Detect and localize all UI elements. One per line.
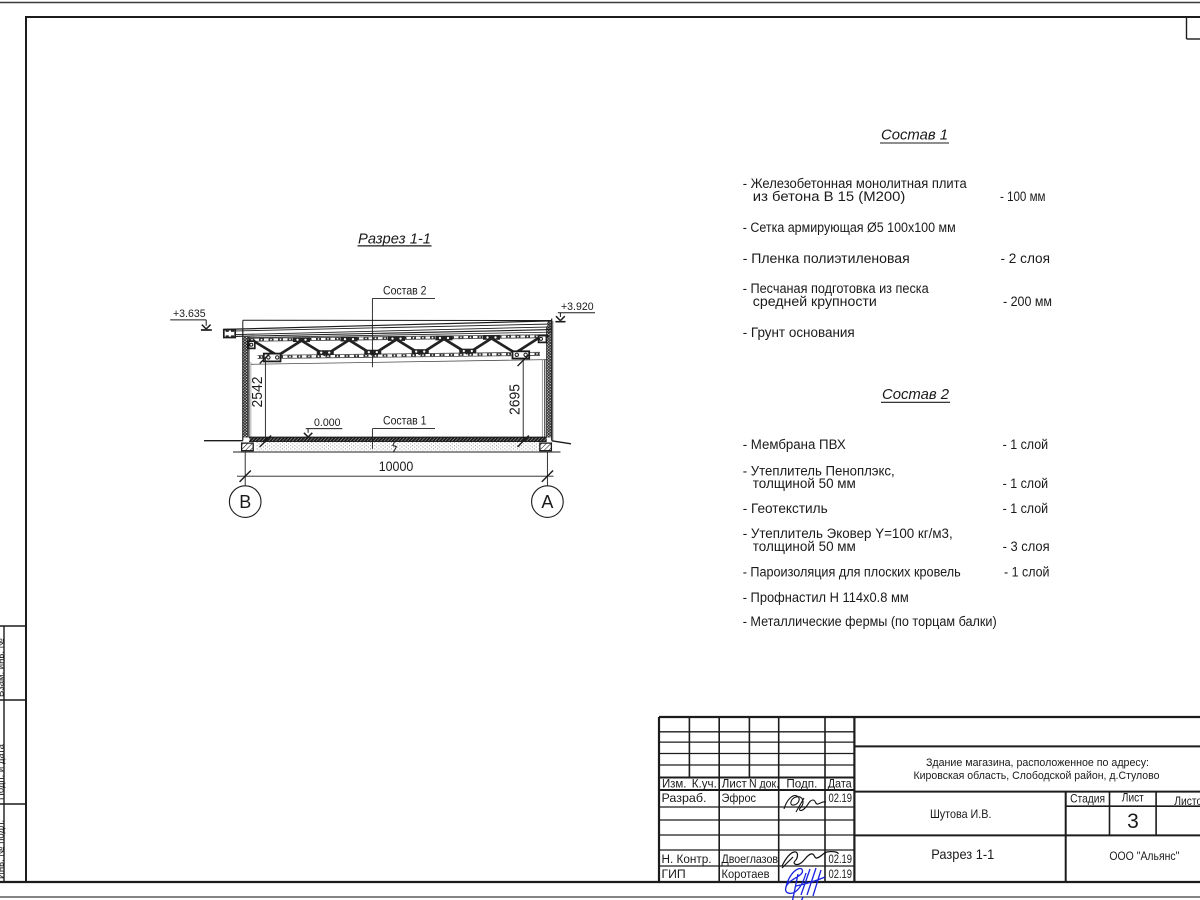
- svg-text:Двоеглазов: Двоеглазов: [722, 852, 779, 866]
- svg-text:- 1 слой: - 1 слой: [1003, 437, 1049, 453]
- svg-text:Лист: Лист: [1122, 791, 1145, 805]
- svg-text:Состав 2: Состав 2: [383, 283, 427, 297]
- svg-text:Разраб.: Разраб.: [662, 791, 707, 805]
- svg-text:Инв. № подл.: Инв. № подл.: [0, 820, 7, 879]
- svg-text:+3.635: +3.635: [173, 308, 206, 320]
- svg-text:- 1 слой: - 1 слой: [1003, 501, 1049, 517]
- svg-text:- Геотекстиль: - Геотекстиль: [743, 501, 828, 517]
- svg-text:Н. Контр.: Н. Контр.: [662, 852, 712, 866]
- svg-text:А: А: [541, 492, 553, 512]
- svg-text:- 200 мм: - 200 мм: [1003, 294, 1052, 310]
- svg-text:Эфрос: Эфрос: [722, 791, 757, 805]
- svg-text:3: 3: [1127, 810, 1139, 833]
- svg-text:10000: 10000: [379, 458, 414, 474]
- svg-text:- 2 слоя: - 2 слоя: [1001, 251, 1051, 267]
- svg-text:- Профнастил Н 114х0.8 мм: - Профнастил Н 114х0.8 мм: [743, 590, 909, 606]
- svg-text:2695: 2695: [508, 384, 524, 415]
- svg-text:- 1 слой: - 1 слой: [1004, 564, 1050, 580]
- svg-text:02.19: 02.19: [829, 852, 853, 866]
- svg-text:Состав 1: Состав 1: [881, 128, 948, 144]
- svg-text:Подп.: Подп.: [786, 777, 817, 791]
- svg-text:- Сетка армирующая Ø5 100х100: - Сетка армирующая Ø5 100х100 мм: [743, 220, 956, 236]
- svg-text:Изм.: Изм.: [662, 777, 687, 791]
- svg-text:Состав 2: Состав 2: [882, 387, 950, 403]
- svg-text:02.19: 02.19: [829, 791, 853, 805]
- svg-text:Взам. инв. №: Взам. инв. №: [0, 638, 7, 697]
- svg-text:- Грунт основания: - Грунт основания: [743, 325, 855, 341]
- svg-text:- Пленка полиэтиленовая: - Пленка полиэтиленовая: [743, 251, 910, 267]
- svg-text:- 3 слоя: - 3 слоя: [1003, 539, 1050, 555]
- svg-text:Стадия: Стадия: [1070, 792, 1105, 806]
- svg-text:толщиной 50 мм: толщиной 50 мм: [753, 539, 856, 555]
- svg-text:из бетона В 15 (М200): из бетона В 15 (М200): [753, 189, 906, 205]
- svg-text:Кировская область, Слободской: Кировская область, Слободской район, д.С…: [914, 770, 1160, 782]
- svg-text:Здание магазина, расположенное: Здание магазина, расположенное по адресу…: [926, 757, 1149, 769]
- svg-text:- 100 мм: - 100 мм: [1000, 189, 1046, 205]
- svg-text:- 1 слой: - 1 слой: [1003, 476, 1049, 492]
- svg-text:- Металлические фермы (по торц: - Металлические фермы (по торцам балки): [743, 614, 997, 630]
- svg-text:Дата: Дата: [828, 777, 852, 791]
- svg-text:Шутова И.В.: Шутова И.В.: [930, 807, 992, 821]
- svg-text:- Пароизоляция для плоских кро: - Пароизоляция для плоских кровель: [743, 564, 961, 580]
- svg-text:+3.920: +3.920: [561, 301, 594, 313]
- svg-text:Разрез 1-1: Разрез 1-1: [931, 846, 994, 862]
- svg-text:Состав 1: Состав 1: [383, 414, 427, 428]
- svg-text:Подп. и дата: Подп. и дата: [0, 743, 7, 800]
- svg-text:- Мембрана ПВХ: - Мембрана ПВХ: [743, 437, 847, 453]
- svg-text:2542: 2542: [250, 377, 266, 408]
- svg-text:Листов: Листов: [1174, 794, 1200, 808]
- svg-text:толщиной 50 мм: толщиной 50 мм: [753, 476, 856, 492]
- svg-text:Лист: Лист: [722, 777, 747, 791]
- svg-text:Коротаев: Коротаев: [722, 867, 770, 881]
- svg-text:В: В: [239, 492, 251, 512]
- svg-text:средней крупности: средней крупности: [753, 294, 877, 310]
- svg-text:N док.: N док.: [749, 777, 779, 791]
- svg-text:0.000: 0.000: [314, 417, 341, 429]
- svg-text:Разрез 1-1: Разрез 1-1: [358, 231, 431, 247]
- svg-text:К.уч.: К.уч.: [692, 777, 717, 791]
- svg-text:ООО "Альянс": ООО "Альянс": [1109, 850, 1179, 863]
- svg-text:02.19: 02.19: [829, 867, 853, 881]
- svg-text:ГИП: ГИП: [662, 867, 686, 881]
